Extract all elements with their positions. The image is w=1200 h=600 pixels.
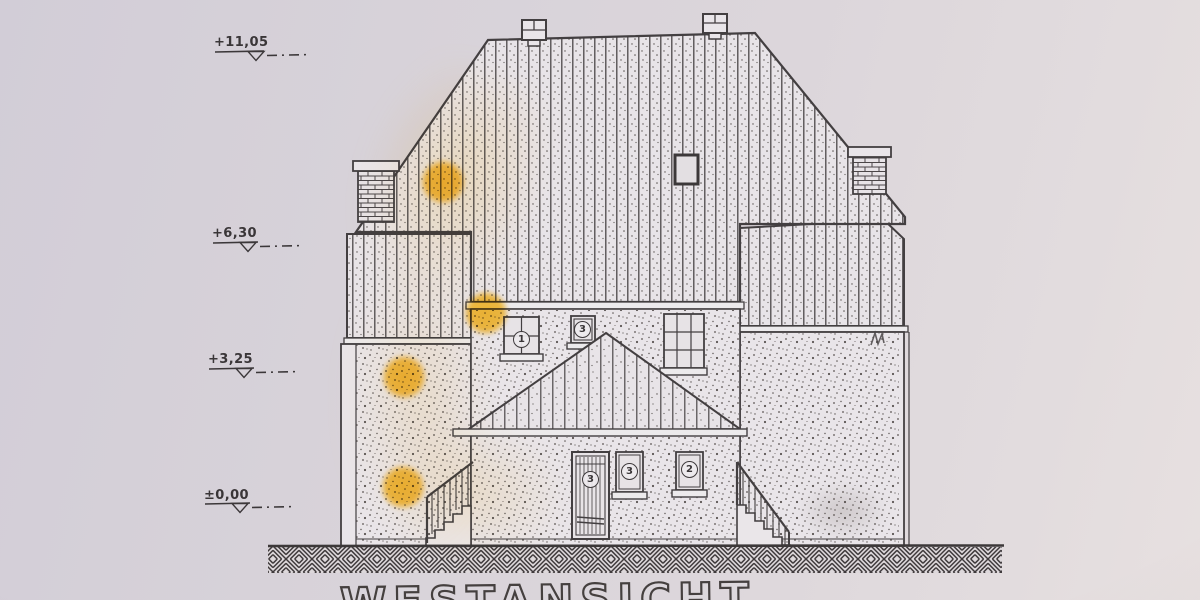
window-sill <box>660 368 707 375</box>
datum-triangle-icon <box>215 51 311 61</box>
door-badge: 3 <box>582 471 599 488</box>
entrance-door <box>572 452 609 539</box>
datum-symbols <box>205 51 311 513</box>
upper-window-large <box>660 314 707 375</box>
photographed-blueprint: +11,05 +6,30 +3,25 ±0,00 1 3 3 3 2 WESTA… <box>0 0 1200 600</box>
elevation-drawing <box>0 0 1200 600</box>
badge-number: 1 <box>518 334 525 345</box>
left-wing-roof <box>347 234 471 338</box>
badge-number: 3 <box>579 324 586 335</box>
window-sill <box>612 492 647 499</box>
elevation-marker-label-2: +6,30 <box>212 226 257 241</box>
right-wing-roof <box>740 220 904 326</box>
ground-window-right-badge: 2 <box>681 461 698 478</box>
drawing-title: WESTANSICHT <box>340 573 756 600</box>
window-sill <box>500 354 543 361</box>
left-wing <box>341 234 474 546</box>
upper-window-small-badge: 3 <box>574 321 591 338</box>
ground-window-left-badge: 3 <box>621 463 638 480</box>
badge-number: 3 <box>626 466 633 477</box>
slope-chimney-left <box>353 161 399 222</box>
datum-triangle-icon <box>205 503 296 513</box>
elevation-marker-label-4: ±0,00 <box>204 488 249 503</box>
porch-eave <box>453 429 747 436</box>
elevation-marker-label-1: +11,05 <box>214 35 268 50</box>
roof-window <box>675 155 698 184</box>
main-eave <box>466 302 744 309</box>
elevation-marker-label-3: +3,25 <box>208 352 253 367</box>
badge-number: 3 <box>587 474 594 485</box>
upper-window-left-badge: 1 <box>513 331 530 348</box>
window-sill <box>672 490 707 497</box>
datum-triangle-icon <box>213 242 304 252</box>
datum-triangle-icon <box>209 368 300 378</box>
badge-number: 2 <box>686 464 693 475</box>
slope-chimney-right <box>848 147 891 194</box>
ground-hatch <box>268 546 1004 574</box>
